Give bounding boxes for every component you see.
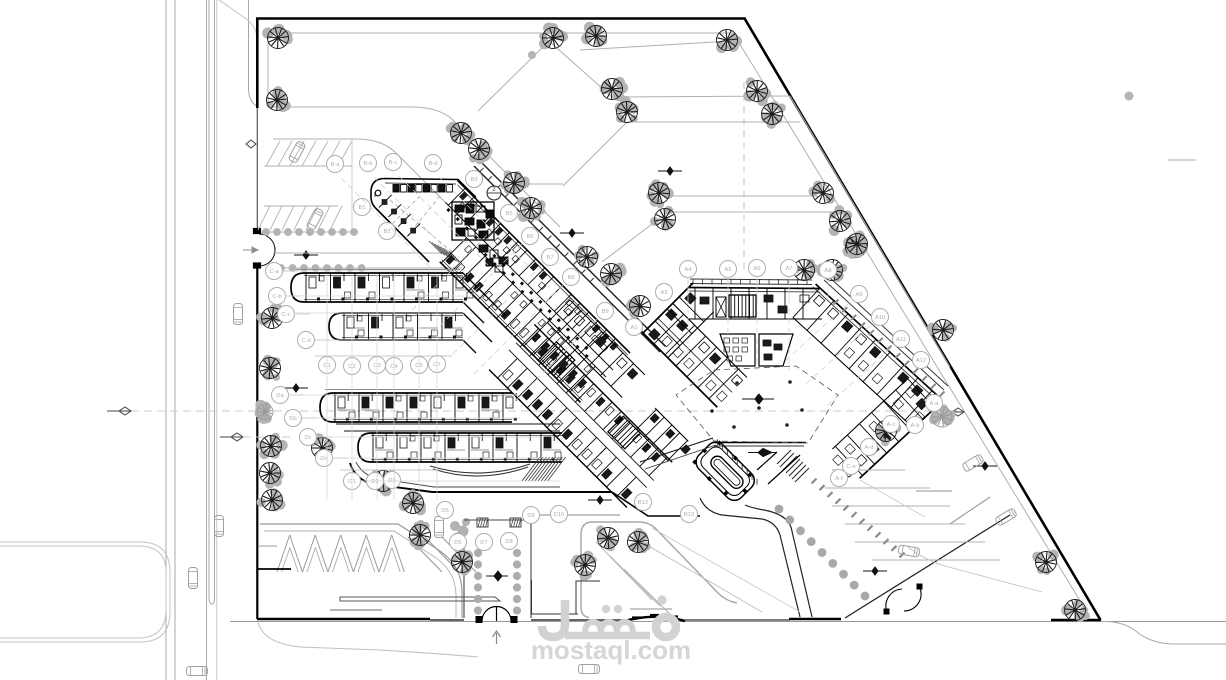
svg-text:A12: A12 [916, 358, 926, 364]
svg-text:mostaql.com: mostaql.com [531, 635, 691, 665]
svg-text:C-e: C-e [846, 464, 855, 470]
svg-text:B1: B1 [358, 205, 365, 211]
svg-text:D5: D5 [441, 508, 448, 514]
svg-text:D9: D9 [527, 513, 534, 519]
svg-text:A11: A11 [896, 337, 906, 343]
svg-text:D6: D6 [454, 540, 461, 546]
svg-text:B12: B12 [638, 500, 648, 506]
svg-text:C-c: C-c [281, 312, 290, 318]
svg-text:C-a: C-a [269, 269, 279, 275]
svg-text:B2: B2 [383, 229, 390, 235]
svg-text:A-b: A-b [910, 423, 919, 429]
svg-text:Dc: Dc [304, 435, 311, 441]
svg-text:D2: D2 [371, 479, 378, 485]
svg-text:A10: A10 [875, 315, 885, 321]
svg-text:A1: A1 [630, 325, 637, 331]
svg-text:D7: D7 [480, 540, 487, 546]
svg-text:B-c: B-c [389, 160, 398, 166]
svg-text:B8: B8 [567, 275, 574, 281]
svg-text:B7: B7 [546, 255, 553, 261]
svg-text:A4: A4 [684, 267, 692, 273]
svg-text:A9: A9 [855, 292, 862, 298]
svg-text:Db: Db [289, 416, 296, 422]
svg-text:D8: D8 [505, 539, 512, 545]
svg-text:A3: A3 [660, 290, 667, 296]
svg-text:Dd: Dd [320, 456, 327, 462]
svg-text:A-a: A-a [929, 401, 939, 407]
svg-text:B13: B13 [684, 512, 694, 518]
svg-text:B6: B6 [526, 234, 533, 240]
svg-text:A-c: A-c [887, 422, 896, 428]
svg-text:A5: A5 [724, 267, 731, 273]
svg-text:B3: B3 [470, 177, 477, 183]
svg-text:A7: A7 [785, 266, 792, 272]
svg-text:A6: A6 [753, 266, 760, 272]
svg-text:B-a: B-a [330, 162, 340, 168]
svg-text:C-b: C-b [272, 294, 281, 300]
svg-text:B-d: B-d [428, 161, 437, 167]
svg-text:C4: C4 [390, 364, 398, 370]
svg-text:B-b: B-b [363, 161, 372, 167]
svg-text:B5: B5 [505, 211, 512, 217]
svg-text:A-f: A-f [835, 476, 843, 482]
svg-text:A8: A8 [824, 268, 831, 274]
svg-text:A-d: A-d [864, 445, 873, 451]
svg-text:Da: Da [276, 393, 284, 399]
svg-text:C-d: C-d [301, 338, 310, 344]
svg-text:D10: D10 [554, 512, 565, 518]
svg-text:B9: B9 [601, 309, 608, 315]
